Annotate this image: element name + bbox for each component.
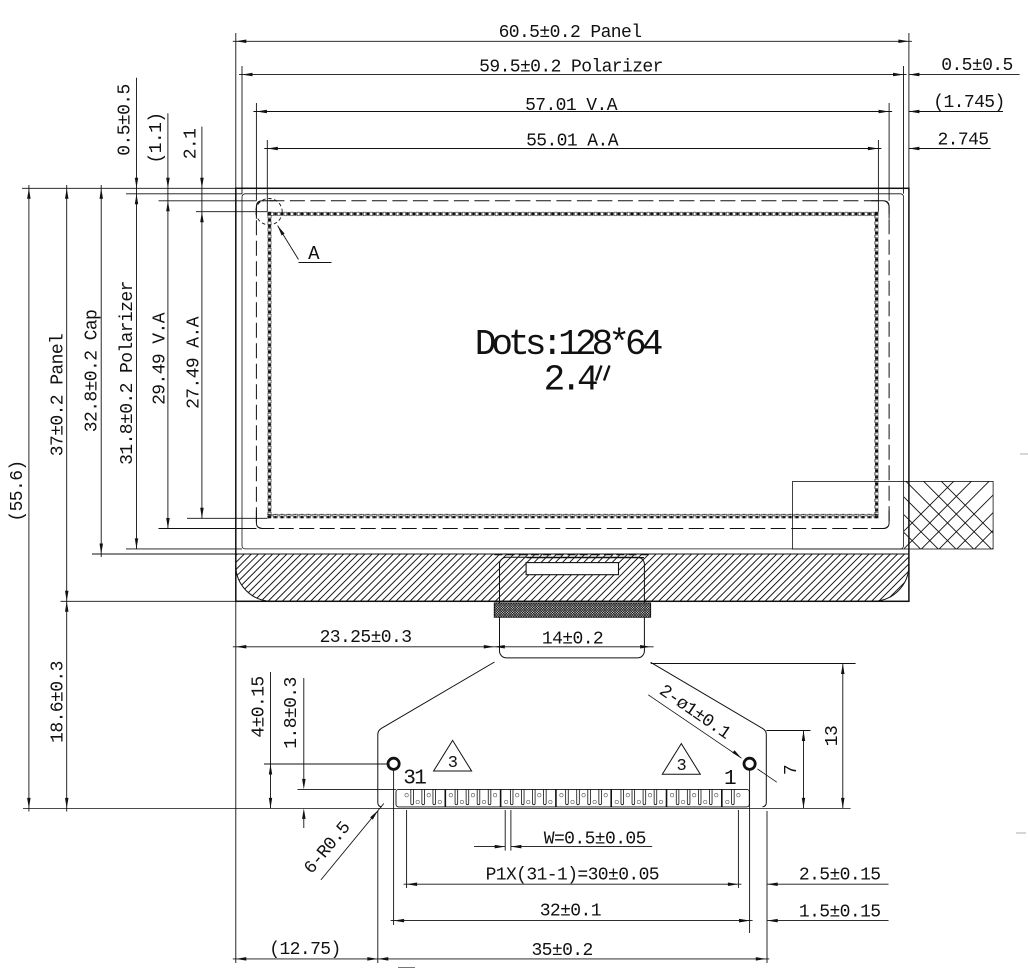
svg-text:2.5±0.15: 2.5±0.15 (799, 866, 881, 886)
svg-text:57.01 V.A: 57.01 V.A (525, 96, 618, 116)
svg-text:29.49 V.A: 29.49 V.A (151, 312, 171, 405)
svg-text:31.8±0.2 Polarizer: 31.8±0.2 Polarizer (118, 281, 138, 465)
svg-text:27.49 A.A: 27.49 A.A (185, 316, 205, 409)
svg-text:31: 31 (403, 768, 426, 791)
svg-text:55.01 A.A: 55.01 A.A (526, 132, 619, 152)
svg-text:4±0.15: 4±0.15 (250, 676, 270, 737)
svg-text:2-ø1±0.1: 2-ø1±0.1 (655, 681, 734, 744)
svg-text:23.25±0.3: 23.25±0.3 (320, 628, 412, 648)
svg-text:1: 1 (724, 768, 736, 791)
svg-text:W=0.5±0.05: W=0.5±0.05 (544, 830, 646, 850)
svg-text:0.5±0.5: 0.5±0.5 (116, 84, 136, 155)
svg-text:(12.75): (12.75) (269, 940, 340, 960)
svg-text:0.5±0.5: 0.5±0.5 (941, 56, 1012, 76)
svg-text:3: 3 (676, 757, 686, 776)
svg-text:18.6±0.3: 18.6±0.3 (49, 661, 69, 743)
svg-text:32±0.1: 32±0.1 (540, 902, 601, 922)
svg-text:13: 13 (823, 726, 843, 746)
svg-text:P1X(31-1)=30±0.05: P1X(31-1)=30±0.05 (486, 866, 659, 886)
svg-text:A: A (308, 243, 320, 265)
svg-text:60.5±0.2 Panel: 60.5±0.2 Panel (499, 23, 642, 43)
svg-text:35±0.2: 35±0.2 (531, 941, 592, 961)
svg-text:(1.1): (1.1) (147, 112, 167, 163)
svg-text:32.8±0.2 Cap: 32.8±0.2 Cap (83, 310, 103, 432)
svg-text:(55.6): (55.6) (8, 460, 28, 521)
svg-text:2.4: 2.4 (544, 360, 597, 401)
svg-text:3: 3 (448, 754, 458, 773)
svg-text:14±0.2: 14±0.2 (542, 630, 603, 650)
svg-text:1.5±0.15: 1.5±0.15 (799, 903, 881, 923)
svg-text:2.745: 2.745 (937, 131, 988, 151)
svg-text:37±0.2 Panel: 37±0.2 Panel (49, 334, 69, 456)
svg-text:(1.745): (1.745) (933, 93, 1004, 113)
svg-text:59.5±0.2 Polarizer: 59.5±0.2 Polarizer (479, 58, 663, 78)
svg-text:2.1: 2.1 (182, 129, 202, 160)
svg-text:1.8±0.3: 1.8±0.3 (282, 677, 302, 748)
svg-text:7: 7 (782, 765, 802, 775)
